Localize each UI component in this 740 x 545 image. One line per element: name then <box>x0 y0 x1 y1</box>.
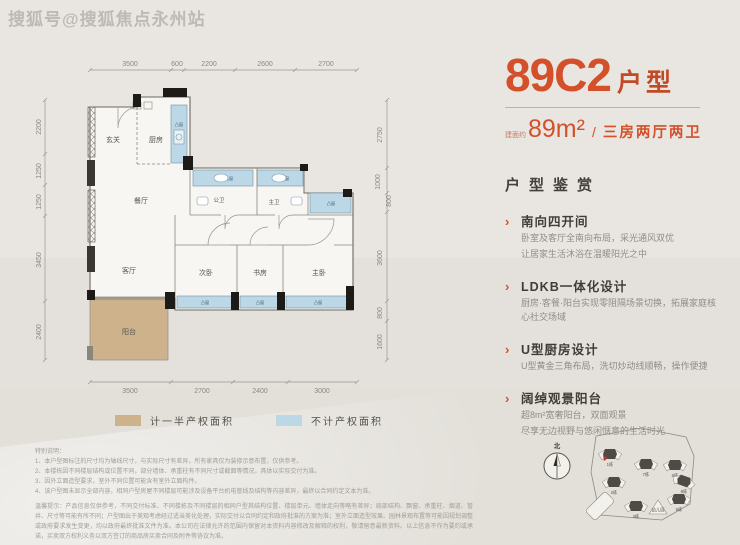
building-5: 5栋 <box>667 494 690 513</box>
dim-left-5: 2400 <box>36 324 43 340</box>
bullet-arrow-icon: › <box>505 279 521 294</box>
dim-right-2: 1000 <box>375 174 382 190</box>
feature-title: LDKB一体化设计 <box>521 276 627 295</box>
svg-text:7栋: 7栋 <box>643 471 650 478</box>
room-label-entry: 玄关 <box>106 135 120 144</box>
room-label-master-bath: 主卫 <box>268 198 280 206</box>
area-legend: 计一半产权面积 不计产权面积 <box>115 413 383 428</box>
unit-code: 89C2 <box>505 52 611 98</box>
svg-text:凸窗: 凸窗 <box>201 299 209 306</box>
svg-text:凸窗: 凸窗 <box>175 121 183 128</box>
feature-item: › 南向四开间 卧室及客厅全南向布局，采光通风双优 让居家生活沐浴在温暖阳光之中 <box>505 211 720 262</box>
feature-title: U型厨房设计 <box>521 339 599 358</box>
feature-list: › 南向四开间 卧室及客厅全南向布局，采光通风双优 让居家生活沐浴在温暖阳光之中… <box>505 211 720 439</box>
svg-text:1栋: 1栋 <box>607 461 614 468</box>
bullet-arrow-icon: › <box>505 391 521 406</box>
floorplan-drawing: 3500 600 2200 2600 2700 2200 1250 1250 3… <box>25 50 495 395</box>
feature-line: U型黄金三角布局，洗切炒动线顺畅，操作便捷 <box>521 360 720 374</box>
svg-text:3栋: 3栋 <box>633 513 640 520</box>
north-label: 北 <box>554 441 561 450</box>
poster-canvas: 搜狐号@搜狐焦点永州站 <box>0 0 740 545</box>
feature-item: › LDKB一体化设计 厨房·客餐·阳台实现零阻隔场景切换，拓展家庭核心社交场域 <box>505 276 720 325</box>
feature-line: 厨房·客餐·阳台实现零阻隔场景切换，拓展家庭核心社交场域 <box>521 297 720 325</box>
site-buildings: 1栋 7栋 6栋 8栋 <box>585 449 697 521</box>
svg-text:2栋: 2栋 <box>611 489 618 496</box>
dim-left-4: 3450 <box>36 252 43 268</box>
layout-description: 三房两厅两卫 <box>603 121 702 142</box>
room-label-master: 主卧 <box>312 268 326 277</box>
dim-right-4: 3600 <box>377 250 384 266</box>
room-label-guest-bath: 公卫 <box>213 197 225 204</box>
title-divider <box>505 107 700 108</box>
bullet-arrow-icon: › <box>505 214 521 229</box>
legend-no-property: 不计产权面积 <box>276 413 383 428</box>
svg-text:8栋: 8栋 <box>681 488 688 495</box>
room-label-living: 客厅 <box>122 266 136 275</box>
building-7: 7栋 <box>634 459 657 478</box>
dim-right-5: 800 <box>377 307 384 319</box>
dim-left-1: 2200 <box>36 119 43 135</box>
dim-left-3: 1250 <box>36 194 43 210</box>
area-prefix: 建面约 <box>505 130 526 140</box>
appreciation-title: 户型鉴赏 <box>505 174 720 195</box>
special-note-title: 特别说明： <box>35 448 473 458</box>
dim-right-1: 2750 <box>377 127 384 143</box>
feature-line: 超8m²宽奢阳台，双面观景 <box>521 409 720 423</box>
compass-icon: 北 <box>544 441 570 479</box>
dim-top-1: 3500 <box>122 61 138 68</box>
watermark: 搜狐号@搜狐焦点永州站 <box>8 5 206 30</box>
dim-top-3: 2200 <box>201 61 217 68</box>
unit-suffix: 户型 <box>617 63 675 99</box>
svg-text:幼儿园: 幼儿园 <box>652 507 665 514</box>
dim-bottom-3: 2400 <box>252 388 268 395</box>
feature-line: 让居家生活沐浴在温暖阳光之中 <box>521 248 720 262</box>
svg-text:凸窗: 凸窗 <box>314 299 322 306</box>
svg-text:凸窗: 凸窗 <box>256 299 264 306</box>
feature-item: › U型厨房设计 U型黄金三角布局，洗切炒动线顺畅，操作便捷 <box>505 339 720 374</box>
room-label-dining: 餐厅 <box>134 196 148 205</box>
bullet-arrow-icon: › <box>505 342 521 357</box>
dim-right-3: 800 <box>386 195 393 207</box>
warm-tip-paragraph: 温馨提示：产品信息仅供参考，不同交付标准、不同楼栋及不同楼层的相同户型其结构位置… <box>35 503 473 543</box>
room-label-balcony: 阳台 <box>122 327 136 336</box>
dim-top-2: 600 <box>171 61 183 68</box>
area-separator: / <box>592 124 596 140</box>
dim-bottom-4: 3000 <box>314 388 330 395</box>
dim-bottom-1: 3500 <box>122 388 138 395</box>
room-label-kitchen: 厨房 <box>149 135 163 144</box>
feature-title: 南向四开间 <box>521 211 589 230</box>
dim-top-4: 2600 <box>257 61 273 68</box>
disclaimer-notes: 特别说明： 1、本户型图标注的尺寸均为轴线尺寸，与实际尺寸有差异，所有家具仅为装… <box>35 448 473 543</box>
dim-right-6: 1600 <box>377 334 384 350</box>
special-note-line: 2、本楼栋因不同楼层结构或位置不同，部分墙体、承重柱有不同尺寸或截面等情况，具体… <box>35 468 473 478</box>
special-note-line: 1、本户型图标注的尺寸均为轴线尺寸，与实际尺寸有差异，所有家具仅为装修示意布置，… <box>35 458 473 468</box>
dim-top-5: 2700 <box>318 61 334 68</box>
title-panel: 89C2 户型 建面约 89m² / 三房两厅两卫 户型鉴赏 › 南向四开间 卧… <box>505 52 720 453</box>
dim-left-2: 1250 <box>36 163 43 179</box>
special-note-line: 4、该户型图未显示全部内容，相同户型房屋不同楼层可能涉及设备平台机电管线及结构等… <box>35 488 473 498</box>
balcony-area: 阳台 <box>90 298 168 360</box>
room-label-bedroom2: 次卧 <box>199 268 213 277</box>
half-property-swatch <box>115 415 141 426</box>
svg-text:凸窗: 凸窗 <box>327 200 335 207</box>
no-property-swatch <box>276 415 302 426</box>
legend-half-property: 计一半产权面积 <box>115 413 234 428</box>
unlabeled-building <box>585 491 615 521</box>
kindergarten: 幼儿园 <box>649 500 667 514</box>
room-label-study: 书房 <box>253 268 267 277</box>
feature-line: 卧室及客厅全南向布局，采光通风双优 <box>521 232 720 246</box>
feature-title: 阔绰观景阳台 <box>521 388 602 407</box>
siteplan-drawing: 北 1栋 7栋 <box>538 424 738 544</box>
area-value: 89m² <box>528 115 585 144</box>
dim-bottom-2: 2700 <box>194 388 210 395</box>
building-1: 1栋 <box>598 449 621 468</box>
special-note-line: 3、因外立面造型要求，室外不同位置可能含有室外立面构件。 <box>35 478 473 488</box>
svg-text:5栋: 5栋 <box>676 506 683 513</box>
